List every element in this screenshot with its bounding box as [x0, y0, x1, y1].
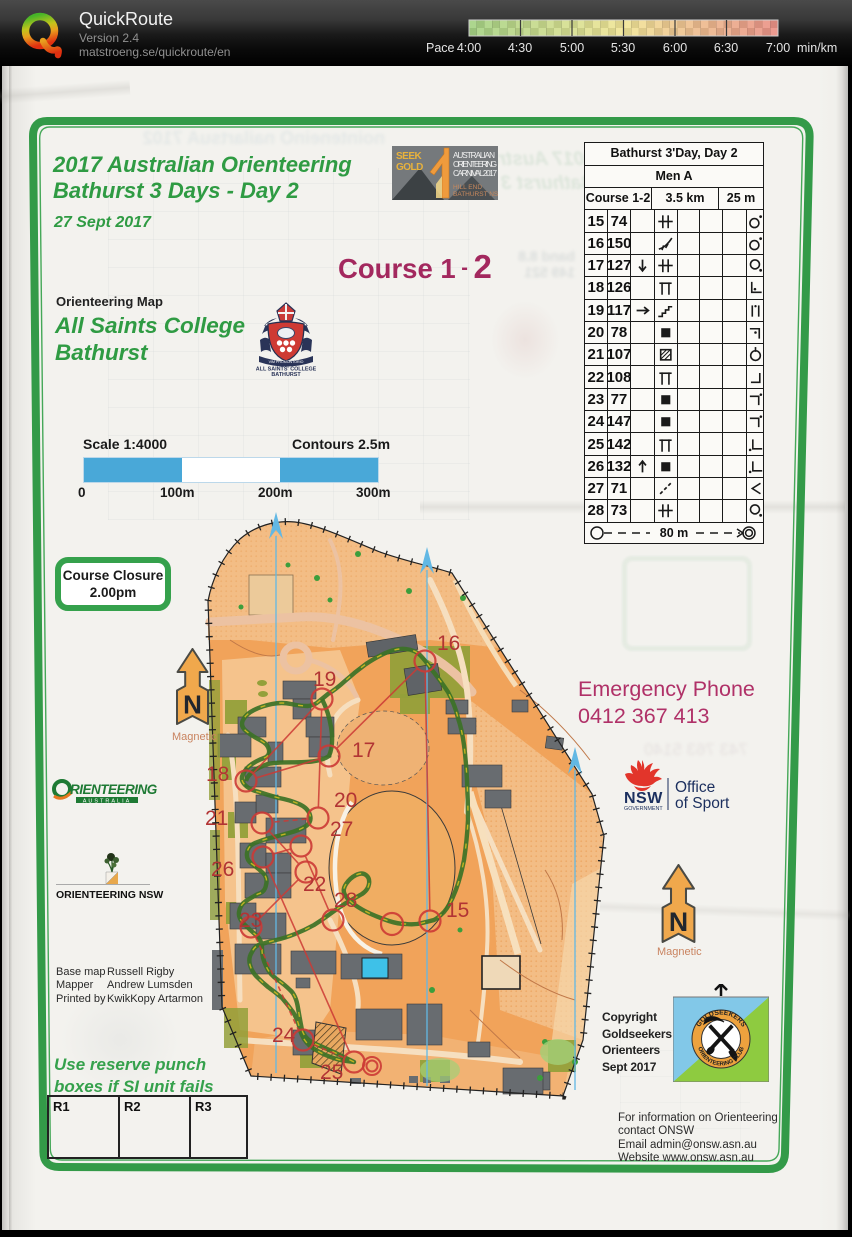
svg-text:27: 27: [330, 818, 353, 841]
svg-text:AUSTRALIAN: AUSTRALIAN: [453, 151, 495, 160]
svg-text:28: 28: [334, 889, 357, 912]
svg-text:80 m: 80 m: [660, 526, 689, 540]
svg-text:17: 17: [352, 739, 375, 762]
svg-text:24: 24: [272, 1024, 296, 1047]
svg-text:15: 15: [446, 899, 469, 922]
svg-text:RIENTEERING: RIENTEERING: [70, 782, 158, 797]
svg-text:18: 18: [206, 763, 229, 786]
svg-text:CARNIVAL 2017: CARNIVAL 2017: [453, 169, 497, 178]
svg-text:NSW: NSW: [624, 790, 663, 807]
svg-text:GOVERNMENT: GOVERNMENT: [624, 806, 663, 812]
svg-text:23: 23: [239, 909, 262, 932]
svg-text:SEEK: SEEK: [396, 151, 423, 162]
svg-text:HILL END: HILL END: [453, 184, 482, 191]
svg-text:21: 21: [205, 807, 228, 830]
svg-text:N: N: [183, 690, 202, 720]
svg-text:BATHURST: BATHURST: [271, 372, 301, 376]
svg-text:25: 25: [320, 1061, 343, 1084]
svg-text:20: 20: [334, 789, 357, 812]
svg-text:19: 19: [313, 668, 336, 691]
svg-text:16: 16: [437, 632, 460, 655]
svg-text:VIM PROMONTORIO: VIM PROMONTORIO: [269, 360, 304, 364]
svg-text:Office: Office: [675, 779, 715, 796]
svg-text:22: 22: [303, 873, 326, 896]
svg-text:GOLD: GOLD: [396, 162, 423, 173]
svg-text:AUSTRALIA: AUSTRALIA: [83, 799, 132, 805]
svg-text:ORIENTEERING: ORIENTEERING: [453, 160, 497, 169]
svg-text:of Sport: of Sport: [675, 795, 730, 812]
svg-text:26: 26: [211, 858, 234, 881]
svg-text:BATHURST NSW: BATHURST NSW: [453, 191, 498, 198]
svg-text:N: N: [669, 907, 688, 937]
